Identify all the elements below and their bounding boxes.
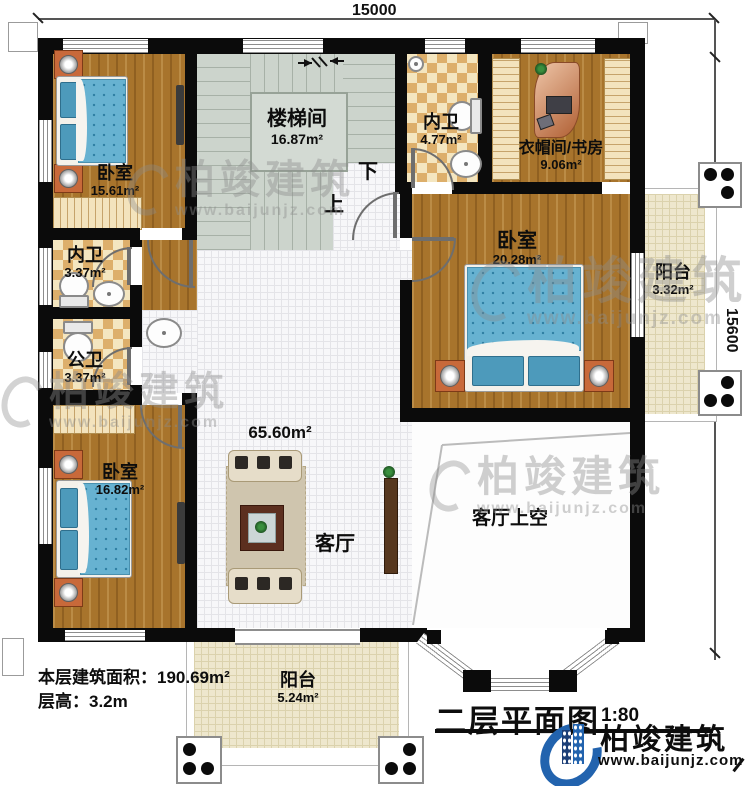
bay-window-glass: [486, 678, 550, 691]
tv: [177, 502, 185, 564]
bay-window-post: [605, 630, 619, 644]
stair-treads: [343, 53, 400, 163]
stair-treads: [250, 168, 333, 250]
door-leaf: [393, 192, 397, 238]
wall: [185, 393, 197, 628]
balcony-right-floor: [641, 194, 705, 414]
brand-website: www.baijunjz.com: [598, 752, 743, 769]
toilet-tank: [59, 295, 89, 308]
door-leaf: [411, 148, 415, 188]
window: [39, 468, 52, 544]
floor-area-stat: 本层建筑面积：190.69m²: [38, 663, 230, 688]
sink-icon: [146, 318, 182, 348]
floor-area-label: 本层建筑面积：: [38, 668, 157, 687]
room-label-living: 客厅: [300, 533, 370, 556]
wardrobe: [53, 197, 142, 230]
plant-icon: [535, 63, 547, 75]
wall: [395, 38, 407, 182]
wall: [400, 408, 645, 422]
wall: [400, 280, 412, 420]
corner-mark: [2, 638, 24, 676]
floor-height-stat: 层高：3.2m: [38, 687, 128, 712]
mattress: [467, 267, 581, 351]
wardrobe: [53, 405, 135, 434]
balcony-sliding-door: [235, 629, 360, 645]
room-label-bedroom-right: 卧室 20.28m²: [462, 230, 572, 268]
wall: [360, 628, 427, 642]
bay-window-post: [463, 670, 491, 692]
lamp-icon: [59, 55, 78, 74]
room-label-balcony-bottom: 阳台 5.24m²: [258, 670, 338, 706]
stair-treads: [197, 53, 250, 250]
wall: [630, 38, 645, 640]
room-label-bedroom-bottomleft: 卧室 16.82m²: [65, 462, 175, 498]
lamp-icon: [440, 365, 460, 387]
bed-sheet: [467, 340, 579, 356]
stair-break-mark: [296, 54, 346, 72]
column-marker: [698, 162, 742, 208]
pillow: [472, 356, 524, 386]
lamp-icon: [589, 365, 609, 387]
room-label-stairwell: 楼梯间 16.87m²: [252, 108, 342, 147]
wall: [185, 38, 197, 240]
room-label-bath-public: 公卫 3.37m²: [40, 350, 130, 386]
wall: [130, 240, 142, 247]
wall: [53, 393, 140, 405]
living-void-outline: [405, 425, 635, 635]
floor-area-value: 190.69m²: [157, 668, 230, 687]
corner-mark: [8, 22, 38, 52]
stair-up-label: 上: [324, 188, 344, 217]
pillow: [528, 356, 580, 386]
plant-icon: [383, 466, 395, 478]
nightstand: [54, 578, 83, 607]
wall: [400, 194, 412, 238]
wall: [53, 307, 130, 319]
sofa: [228, 450, 302, 482]
dimension-right: 15600: [722, 308, 740, 353]
bay-window-post: [427, 630, 441, 644]
room-label-balcony-right: 阳台 3.32m²: [642, 262, 704, 298]
logo-building-icon: [562, 730, 571, 764]
wall: [38, 228, 140, 240]
sink-icon: [450, 150, 482, 178]
door-leaf: [412, 237, 454, 241]
floor-plan: 15000 15600: [0, 0, 750, 786]
floor-height-value: 3.2m: [89, 692, 128, 711]
stair-down-label: 下: [358, 155, 378, 184]
nightstand: [584, 360, 614, 392]
door-leaf: [178, 405, 182, 447]
room-label-bath-mid: 内卫 3.37m²: [40, 245, 130, 281]
bay-window-post: [549, 670, 577, 692]
shower-icon: [408, 56, 424, 72]
floor-height-label: 层高：: [38, 692, 89, 711]
logo-building-icon: [573, 724, 584, 764]
window: [65, 630, 145, 641]
living-room-area-label: 65.60m²: [225, 423, 335, 443]
window: [39, 120, 52, 182]
sofa: [228, 568, 302, 604]
wall: [452, 182, 602, 194]
column-marker: [698, 370, 742, 416]
column-marker: [176, 736, 222, 784]
door-leaf: [189, 240, 193, 286]
computer-monitor-icon: [546, 96, 572, 114]
room-label-living-void: 客厅上空: [445, 508, 575, 530]
room-label-bedroom-topleft: 卧室 15.61m²: [60, 163, 170, 199]
wall: [182, 228, 197, 240]
lamp-icon: [59, 583, 78, 602]
tv: [176, 85, 184, 145]
room-label-bath-top: 内卫 4.77m²: [403, 112, 479, 148]
wall: [130, 285, 142, 347]
tv-cabinet: [384, 478, 398, 574]
window: [521, 39, 595, 53]
column-marker: [378, 736, 424, 784]
dimension-line-top: [38, 18, 714, 20]
plant-icon: [255, 521, 267, 533]
nightstand: [54, 50, 83, 79]
sink-icon: [93, 281, 125, 307]
brand-logo-icon: [540, 716, 598, 782]
room-label-cloak-study: 衣帽间/书房 9.06m²: [492, 140, 630, 173]
window: [243, 39, 323, 53]
nightstand: [435, 360, 465, 392]
pillow: [60, 530, 78, 570]
window: [425, 39, 465, 53]
